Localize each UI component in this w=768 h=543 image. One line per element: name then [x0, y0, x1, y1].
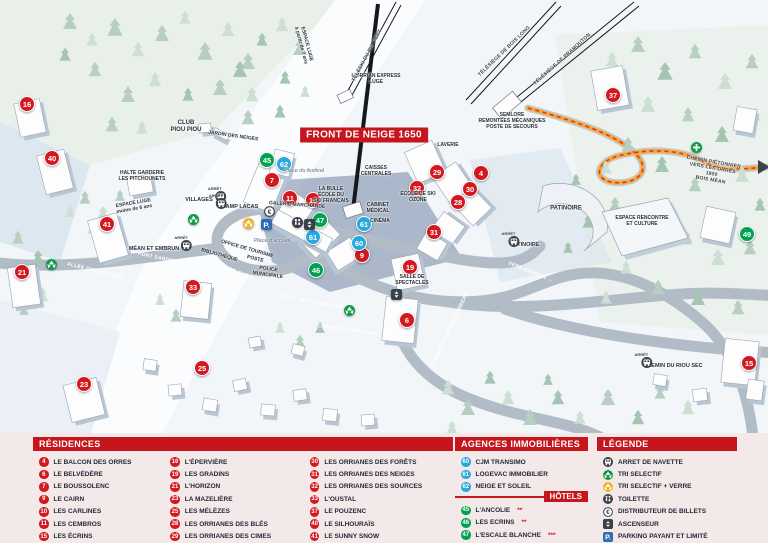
svg-text:P.: P. [605, 534, 611, 541]
legend-item-number: 7 [39, 482, 49, 492]
legend-item-label: LE BOUSSOLENC [54, 483, 110, 490]
svg-text:P.: P. [263, 220, 269, 229]
map-marker-46: 46 [308, 262, 324, 278]
map-marker-33: 33 [185, 279, 201, 295]
legend-item-label: NEIGE ET SOLEIL [476, 483, 532, 490]
legend-item-label: TOILETTE [618, 496, 649, 503]
legend-item: TRI SELECTIF + VERRE [603, 481, 735, 493]
map-marker-19: 19 [402, 259, 418, 275]
agences-header: AGENCES IMMOBILIÈRES [455, 437, 588, 451]
recycle-green-icon [603, 470, 613, 480]
legend-item-number: 19 [170, 470, 180, 480]
legend-item: 6LE BELVÉDÈRE [39, 468, 160, 480]
map-marker-41: 41 [99, 216, 115, 232]
map-marker-4: 4 [473, 165, 489, 181]
parking-icon: P. [603, 532, 613, 542]
map-marker-30: 30 [462, 181, 478, 197]
map-marker-49: 49 [739, 226, 755, 242]
legend-item-number: 15 [39, 532, 49, 542]
map-label: CABINET MÉDICAL [367, 203, 390, 215]
map-marker-10: 10 [305, 192, 321, 208]
legend-item: 9LE CAIRN [39, 493, 160, 505]
map-label: ALLÉE DES CHAMOIS [66, 262, 124, 282]
legend-item: 41LE SUNNY SNOW [310, 530, 451, 542]
map-label: POLICE MUNICIPALE [252, 265, 284, 281]
legend-item: 32LES ORRIANES DES SOURCES [310, 481, 451, 493]
legend-item: 28LES ORRIANES DES BLÉS [170, 518, 300, 530]
map-label: Place d'accueil [254, 238, 291, 244]
map-label: CHEMIN PIÉTONNIER VERS LES ORRES 1800 BO… [682, 156, 741, 189]
map-marker-21: 21 [14, 264, 30, 280]
legend-item: ASCENSEUR [603, 518, 735, 530]
legend-item-number: 33 [310, 495, 320, 505]
legend-item: TOILETTE [603, 493, 735, 505]
legend-item-label: ASCENSEUR [618, 521, 659, 528]
legend-item-label: LES ÉCRINS [54, 533, 93, 540]
recycle-yellow-icon [603, 482, 613, 492]
agences-list: 60CJM TRANSIMO61LOGEVAC IMMOBILIER62NEIG… [455, 451, 588, 493]
front-de-neige-banner: FRONT DE NEIGE 1650 [300, 128, 428, 143]
map-label: CLUB PIOU PIOU [170, 120, 201, 134]
legend-item-label: TRI SELECTIF + VERRE [618, 483, 692, 490]
legend-item: 60CJM TRANSIMO [461, 456, 586, 468]
legend-item-number: 4 [39, 457, 49, 467]
map-label: DÉPOSE CARS [213, 262, 252, 281]
legend-item-number: 60 [461, 457, 471, 467]
legend-item: 40LE SILHOURAÏS [310, 518, 451, 530]
bus-stop-champ-lacas: ARRÊTCHAMP LACAS [216, 198, 259, 216]
map-marker-15: 15 [741, 355, 757, 371]
residences-section: RÉSIDENCES 4LE BALCON DES ORRES6LE BELVÉ… [33, 437, 453, 543]
map-label: ROUTE DE PRAMOUTON [277, 294, 342, 311]
legend-item-label: CJM TRANSIMO [476, 459, 526, 466]
hotels-header: HÔTELS [544, 491, 588, 502]
legend-item-label: LE SILHOURAÏS [324, 521, 374, 528]
legend-item: €DISTRIBUTEUR DE BILLETS [603, 506, 735, 518]
legende-section: LÉGENDE ARRET DE NAVETTETRI SELECTIFTRI … [597, 437, 737, 543]
hotels-list: 45L'ANCOLIE**46LES ECRINS**47L'ESCALE BL… [455, 498, 588, 543]
map-label: SALLE DE SPECTACLES [395, 275, 428, 287]
legend-item-label: LES ORRIANES DES SOURCES [324, 483, 422, 490]
map-label: ESPACE LUGE à partir de 7 ans [292, 25, 313, 65]
legend-panel: RÉSIDENCES 4LE BALCON DES ORRES6LE BELVÉ… [0, 433, 768, 543]
elevator-icon [603, 519, 613, 529]
legend-item-label: LES ORRIANES DES NEIGES [324, 471, 414, 478]
map-label: CINÉMA [370, 219, 390, 225]
map-marker-7: 7 [264, 172, 280, 188]
legend-item: TRI SELECTIF [603, 468, 735, 480]
legend-item-label: LES ORRIANES DES CIMES [185, 533, 271, 540]
legend-item: 31LES ORRIANES DES NEIGES [310, 468, 451, 480]
map-label: JARDIN DES NEIGES [208, 131, 259, 144]
map-marker-29: 29 [429, 164, 445, 180]
hotel-stars: ** [522, 519, 527, 526]
map-label: HALTE GARDERIE LES PITCHOUNETS [119, 171, 166, 183]
bus-stop-patinoire: ARRÊTPATINOIRE [508, 236, 539, 254]
legend-item: 61LOGEVAC IMMOBILIER [461, 468, 586, 480]
euro-icon: € [603, 507, 613, 517]
legend-item-label: LE BALCON DES ORRES [54, 459, 132, 466]
legende-list: ARRET DE NAVETTETRI SELECTIFTRI SELECTIF… [597, 451, 737, 543]
legend-item: 16L'ÉPERVIÈRE [170, 456, 300, 468]
map-label: CAISSES CENTRALES [361, 166, 392, 178]
legend-item-number: 62 [461, 482, 471, 492]
resort-map: FRONT DE NEIGE 1650 16404121232533711109… [0, 0, 768, 437]
legend-item-label: LE POUZENC [324, 508, 366, 515]
map-label: POSTE [246, 255, 264, 265]
legend-item-number: 21 [170, 482, 180, 492]
legend-item-number: 9 [39, 495, 49, 505]
map-marker-32: 32 [409, 180, 425, 196]
legend-item-number: 31 [310, 470, 320, 480]
legend-item: 4LE BALCON DES ORRES [39, 456, 160, 468]
legend-item: 23LA MAZELIÈRE [170, 493, 300, 505]
legend-item-number: 61 [461, 470, 471, 480]
legend-item-label: LE CAIRN [54, 496, 85, 503]
resort-map-page: FRONT DE NEIGE 1650 16404121232533711109… [0, 0, 768, 543]
map-marker-37: 37 [605, 87, 621, 103]
legend-item-number: 45 [461, 506, 471, 516]
legend-item-number: 28 [170, 519, 180, 529]
map-label: OFFICE DE TOURISME [220, 240, 274, 261]
legend-item-number: 46 [461, 518, 471, 528]
legend-item: 46LES ECRINS** [461, 517, 586, 529]
map-label: SEMLORE REMONTÉES MÉCANIQUES POSTE DE SE… [479, 113, 546, 131]
wc-icon [603, 494, 613, 504]
map-label: ESPACE RENCONTRE ET CULTURE [615, 216, 668, 228]
map-marker-40: 40 [44, 150, 60, 166]
legend-item-number: 10 [39, 507, 49, 517]
map-marker-62: 62 [276, 156, 292, 172]
svg-text:€: € [268, 209, 272, 216]
legend-item-label: LES ORRIANES DES BLÉS [185, 521, 268, 528]
map-marker-28: 28 [450, 194, 466, 210]
legend-item-label: LE BELVÉDÈRE [54, 471, 103, 478]
legend-item: 15LES ÉCRINS [39, 530, 160, 542]
map-overlay: FRONT DE NEIGE 1650 16404121232533711109… [0, 0, 768, 437]
map-label: BIBLIOTHÈQUE [200, 248, 238, 264]
legend-item-number: 29 [170, 532, 180, 542]
legend-item-label: L'ESCALE BLANCHE [476, 532, 541, 539]
legend-item-number: 41 [310, 532, 320, 542]
map-marker-45: 45 [259, 152, 275, 168]
legend-item-number: 32 [310, 482, 320, 492]
legend-item-number: 40 [310, 519, 320, 529]
legend-item-number: 11 [39, 519, 49, 529]
map-marker-60: 60 [351, 235, 367, 251]
legend-item-number: 30 [310, 457, 320, 467]
map-label: VERS EMBRUN → [507, 261, 553, 284]
legend-item: 33L'OUSTAL [310, 493, 451, 505]
legend-item: 25LES MÉLÈZES [170, 506, 300, 518]
map-label: ESPACE LUGE moins de 6 ans [115, 198, 153, 216]
map-label: LAVERIE [437, 143, 458, 149]
legend-item-label: L'HORIZON [185, 483, 221, 490]
bus-stop-m-an-et-embrun: MÉAN ET EMBRUNARRÊT [129, 240, 181, 258]
legend-item-label: LES MÉLÈZES [185, 508, 230, 515]
map-label: CHEMIN DU MOUFLON [317, 324, 377, 338]
map-label: TÉLÉSIÈGE DE BOIS LONG [478, 25, 533, 78]
legend-item-label: LES CARLINES [54, 508, 102, 515]
legend-item-label: LES GRADINS [185, 471, 229, 478]
map-marker-16: 16 [19, 96, 35, 112]
legend-item-label: PARKING PAYANT ET LIMITÉ [618, 533, 708, 540]
legende-header: LÉGENDE [597, 437, 737, 451]
legend-item: 45L'ANCOLIE** [461, 504, 586, 516]
map-label: CHEMIN DU GRAND CORBEAU [431, 292, 471, 368]
legend-item-label: L'ANCOLIE [476, 507, 511, 514]
map-marker-6: 6 [399, 312, 415, 328]
map-marker-11: 11 [282, 190, 298, 206]
map-label: TÉLÉSKI DU PIC VERT [352, 29, 384, 83]
legend-item: P.PARKING PAYANT ET LIMITÉ [603, 530, 735, 542]
legend-item: 10LES CARLINES [39, 506, 160, 518]
legend-item-label: LES ORRIANES DES FORÊTS [324, 459, 416, 466]
legend-item: 11LES CEMBROS [39, 518, 160, 530]
residences-header: RÉSIDENCES [33, 437, 453, 451]
map-marker-31: 31 [426, 224, 442, 240]
legend-item-number: 37 [310, 507, 320, 517]
legend-item: 47L'ESCALE BLANCHE*** [461, 529, 586, 541]
legend-item-label: LES ECRINS [476, 519, 515, 526]
legend-item: 29LES ORRIANES DES CIMES [170, 530, 300, 542]
bus-stop-chemin-du-riou-sec: ARRÊTCHEMIN DU RIOU SEC [641, 357, 702, 375]
legend-item: 19LES GRADINS [170, 468, 300, 480]
legend-item-label: LES CEMBROS [54, 521, 102, 528]
map-marker-23: 23 [76, 376, 92, 392]
hotels-section: HÔTELS 45L'ANCOLIE**46LES ECRINS**47L'ES… [455, 496, 588, 543]
legend-item-label: TRI SELECTIF [618, 471, 662, 478]
legend-item-number: 6 [39, 470, 49, 480]
legend-item: 37LE POUZENC [310, 506, 451, 518]
legend-item-number: 16 [170, 457, 180, 467]
hotel-stars: ** [517, 507, 522, 514]
map-marker-61: 61 [305, 229, 321, 245]
legend-item: 7LE BOUSSOLENC [39, 481, 160, 493]
legend-item: 21L'HORIZON [170, 481, 300, 493]
map-label: L'ORRIAN EXPRESS LUGE [352, 74, 401, 86]
agences-section: AGENCES IMMOBILIÈRES 60CJM TRANSIMO61LOG… [455, 437, 588, 543]
bus-icon [603, 457, 613, 467]
legend-item: ARRET DE NAVETTE [603, 456, 735, 468]
map-label: PATINOIRE [550, 205, 582, 212]
legend-item-number: 23 [170, 495, 180, 505]
residences-list: 4LE BALCON DES ORRES6LE BELVÉDÈRE7LE BOU… [33, 451, 453, 543]
bus-stop-name: MÉAN ET EMBRUN [129, 246, 179, 252]
legend-item-label: LA MAZELIÈRE [185, 496, 233, 503]
legend-item-label: ARRET DE NAVETTE [618, 459, 683, 466]
hotel-stars: *** [548, 532, 556, 539]
legend-item-label: LE SUNNY SNOW [324, 533, 379, 540]
svg-text:€: € [606, 509, 610, 516]
legend-item-number: 25 [170, 507, 180, 517]
map-label: TÉLÉSIÈGE DE PRAMOUTON [533, 33, 593, 87]
legend-item: 30LES ORRIANES DES FORÊTS [310, 456, 451, 468]
legend-item-label: L'ÉPERVIÈRE [185, 459, 228, 466]
map-marker-61: 61 [356, 216, 372, 232]
legend-item-label: LOGEVAC IMMOBILIER [476, 471, 548, 478]
map-marker-25: 25 [194, 360, 210, 376]
legend-item-label: L'OUSTAL [324, 496, 356, 503]
legend-item-number: 47 [461, 530, 471, 540]
legend-item-label: DISTRIBUTEUR DE BILLETS [618, 508, 706, 515]
